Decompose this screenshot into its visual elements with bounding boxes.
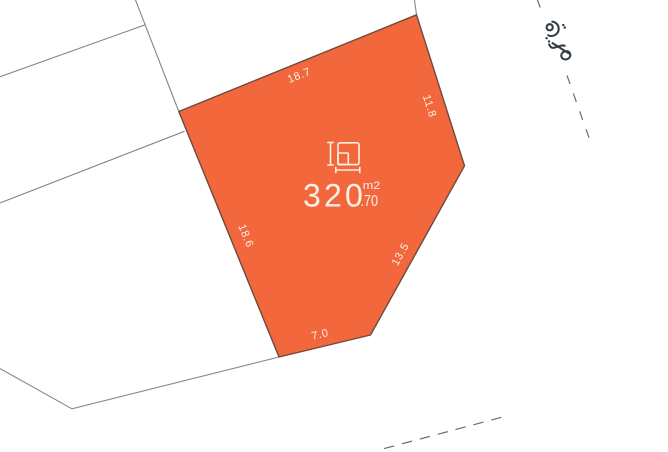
svg-text:m2: m2 (363, 180, 381, 192)
svg-text:320: 320 (303, 178, 366, 214)
svg-text:.70: .70 (361, 193, 379, 210)
